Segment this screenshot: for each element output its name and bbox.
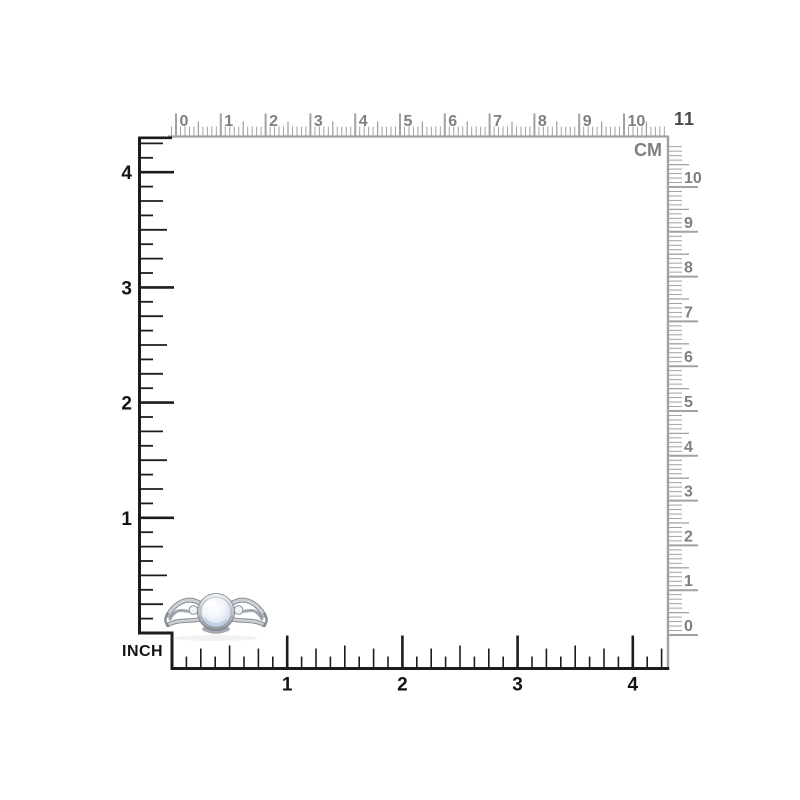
cm-number-right: 10 xyxy=(684,170,702,187)
cm-number-top: 8 xyxy=(538,113,547,130)
product-photo-moonstone-ring xyxy=(163,577,269,643)
side-accent-stone-right xyxy=(234,606,243,615)
cm-number-right: 7 xyxy=(684,304,693,321)
cm-number-right: 4 xyxy=(684,439,693,456)
cm-number-top: 4 xyxy=(359,113,368,130)
cm-number-top: 0 xyxy=(180,113,189,130)
inch-number-bottom: 3 xyxy=(512,675,523,696)
cm-number-right: 8 xyxy=(684,260,693,277)
cm-number-top: 3 xyxy=(314,113,323,130)
cm-number-top: 6 xyxy=(448,113,457,130)
size-chart-image: 01234567891010987654321043211234 CM 11 I… xyxy=(0,0,800,800)
cm-unit-label: CM xyxy=(598,141,662,159)
cm-number-right: 6 xyxy=(684,349,693,366)
side-accent-stone-left xyxy=(189,606,198,615)
cm-number-top: 9 xyxy=(583,113,592,130)
ring-shadow xyxy=(174,635,258,641)
inch-unit-label: INCH xyxy=(122,644,163,660)
cm-corner-number: 11 xyxy=(674,110,695,128)
cm-number-right: 5 xyxy=(684,394,693,411)
cm-number-top: 7 xyxy=(493,113,502,130)
inch-number-left: 2 xyxy=(121,394,132,415)
inch-number-left: 1 xyxy=(121,509,132,530)
inch-number-bottom: 2 xyxy=(397,675,408,696)
inch-number-left: 3 xyxy=(121,278,132,299)
cm-number-right: 1 xyxy=(684,573,693,590)
cm-number-top: 2 xyxy=(269,113,278,130)
cm-number-top: 1 xyxy=(224,113,233,130)
inch-ruler-left-ticks xyxy=(141,143,174,618)
cm-number-right: 9 xyxy=(684,215,693,232)
cm-number-top: 5 xyxy=(404,113,413,130)
cm-number-top: 10 xyxy=(628,113,646,130)
cm-number-right: 2 xyxy=(684,528,693,545)
inch-number-left: 4 xyxy=(121,163,132,184)
inch-number-bottom: 4 xyxy=(628,675,639,696)
inch-number-bottom: 1 xyxy=(282,675,293,696)
cm-number-right: 3 xyxy=(684,484,693,501)
cm-number-right: 0 xyxy=(684,618,693,635)
